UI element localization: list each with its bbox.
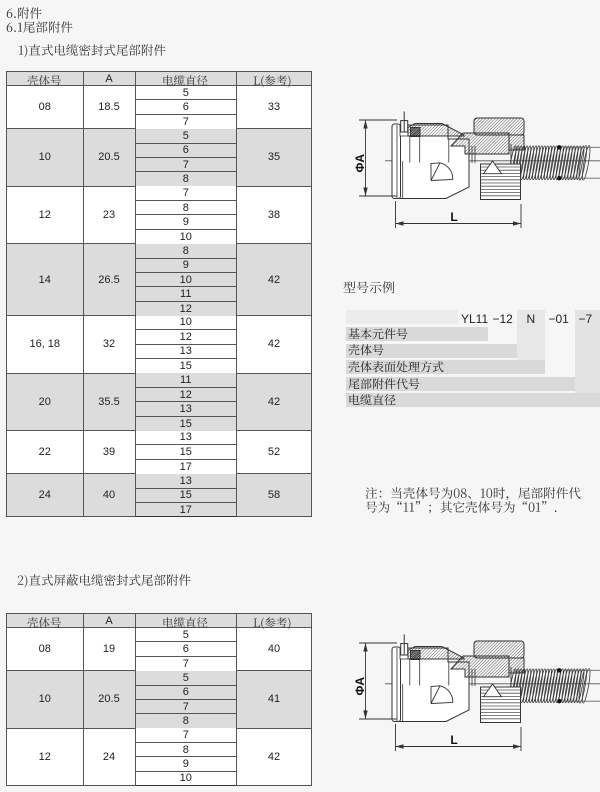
svg-text:L: L [450, 210, 457, 224]
svg-text:ΦA: ΦA [353, 677, 367, 696]
svg-text:ΦA: ΦA [353, 154, 367, 173]
svg-text:L: L [450, 733, 457, 747]
